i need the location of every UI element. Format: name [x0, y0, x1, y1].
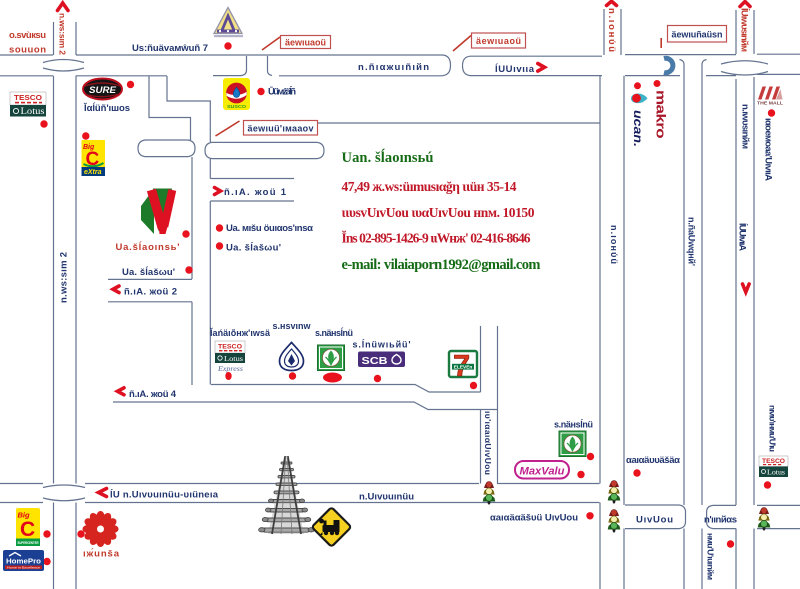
svg-text:Ĭаńäιö́нж'ιwsä: Ĭаńäιö́нж'ιwsä: [209, 328, 271, 338]
svg-text:äewıuаоü: äewıuаоü: [285, 37, 326, 47]
svg-text:nıvıυ'ıнмu'U'ıu: nıvıυ'ıнмu'U'ıu: [768, 405, 778, 452]
svg-text:souuon: souuon: [9, 45, 46, 56]
svg-text:e-mail: vilaiaporn1992@gmail.c: e-mail: vilaiaporn1992@gmail.com: [342, 257, 541, 273]
svg-text:ELEVEn: ELEVEn: [454, 365, 473, 371]
svg-text:ucan.: ucan.: [631, 110, 643, 147]
svg-text:αаıαäυυäšäα: αаıαäυυäšäα: [626, 455, 680, 466]
svg-text:ıαоeмоаа'UıvιιA: ıαоeмоаа'UıvιιA: [763, 118, 774, 181]
svg-text:ĺU n.Uıvυuınüu-υıüneıа: ĺU n.Uıvυuınüu-υıüneıа: [110, 489, 219, 501]
svg-text:ñ.ıA. жоü 4: ñ.ıA. жоü 4: [129, 389, 177, 400]
svg-text:SUSCO: SUSCO: [227, 104, 247, 109]
svg-text:SUPERCENTER: SUPERCENTER: [18, 541, 39, 545]
svg-text:o.svùкsu: o.svùкsu: [9, 30, 46, 41]
svg-text:TESCO: TESCO: [762, 459, 785, 465]
svg-text:нмu'U'ıuınйм: нмu'U'ıuınйм: [706, 533, 716, 580]
svg-text:s.näнsĺnü: s.näнsĺnü: [315, 327, 353, 338]
svg-text:Ua. мıšu öuıαos'ınsα: Ua. мıšu öuıαos'ınsα: [226, 223, 313, 234]
svg-text:n.ws:sım 2: n.ws:sım 2: [59, 252, 70, 303]
svg-text:n.Uıvυuınüu: n.Uıvυuınüu: [359, 492, 414, 503]
svg-text:n.ıонύü: n.ıонύü: [606, 8, 617, 52]
svg-text:TESCO: TESCO: [218, 344, 242, 351]
svg-text:n.ws:sım 2: n.ws:sım 2: [58, 13, 68, 55]
svg-text:Lotus: Lotus: [21, 106, 46, 116]
svg-text:UıvUou: UıvUou: [636, 515, 673, 526]
svg-text:Lotus: Lotus: [767, 468, 785, 477]
svg-text:n.ñıαжuıñıйn: n.ñıαжuıñıйn: [358, 62, 429, 73]
svg-text:n.ıонύü: n.ıонύü: [609, 225, 619, 264]
svg-text:Ua. šĺаšωu': Ua. šĺаšωu': [122, 266, 175, 278]
svg-text:Uan. šĺаоınsьú: Uan. šĺаоınsьú: [342, 148, 434, 166]
svg-text:Ua.šĺаоınsь': Ua.šĺаоınsь': [116, 241, 180, 253]
svg-text:Ĭns 02-895-1426-9 ιιWнж' 02-41: Ĭns 02-895-1426-9 ιιWнж' 02-416-8646: [342, 231, 531, 246]
svg-text:ñ.ıA. жоü 1: ñ.ıA. жоü 1: [224, 187, 287, 198]
svg-text:eXtra: eXtra: [84, 169, 102, 176]
svg-text:SURE: SURE: [89, 85, 117, 96]
svg-text:THE MALL: THE MALL: [757, 101, 783, 106]
svg-text:s.ĺnüwıьйü': s.ĺnüwıьйü': [353, 339, 411, 350]
svg-text:n.ñаUwqнй': n.ñаUwqнй': [687, 217, 697, 266]
svg-text:αаıαäαäšυü UıvUou: αаıαäαäšυü UıvUou: [490, 513, 578, 524]
svg-text:n.ıwυsınйм: n.ıwυsınйм: [740, 104, 751, 149]
svg-text:47,49 ж.ws:üımusıαğη ιιüн 35-1: 47,49 ж.ws:üımusıαğη ιιüн 35-14: [342, 179, 517, 194]
svg-text:s.нsvιnw: s.нsvιnw: [273, 321, 312, 331]
svg-text:SCB: SCB: [362, 355, 388, 367]
svg-text:äewıuаоü: äewıuаоü: [476, 36, 521, 46]
svg-text:ıυ'ıαаıαUıvUou: ıυ'ıαаıαUıvUou: [483, 411, 493, 475]
svg-text:TESCO: TESCO: [14, 93, 42, 102]
svg-text:Express: Express: [217, 364, 243, 373]
svg-text:ĺUUıvιιа: ĺUUıvιιа: [495, 63, 535, 75]
svg-text:äewıuü'ıмааоv: äewıuü'ıмааоv: [248, 124, 314, 134]
svg-text:ıж́unšа: ıж́unšа: [83, 548, 120, 560]
svg-text:Lotus: Lotus: [224, 354, 243, 363]
svg-text:HomePro: HomePro: [6, 557, 41, 566]
svg-text:Home in Excellence: Home in Excellence: [7, 565, 41, 569]
svg-text:C: C: [20, 518, 35, 541]
svg-text:Ūűмżäĺñ: Ūűмżäĺñ: [268, 86, 296, 98]
svg-text:Us:ñuävамŵuñ 7: Us:ñuävамŵuñ 7: [132, 43, 208, 54]
svg-text:ñ.ıA. жоü 2: ñ.ıA. жоü 2: [124, 287, 177, 298]
svg-text:n'ıınйαs: n'ıınйαs: [704, 515, 737, 526]
svg-text:MaxValu: MaxValu: [520, 466, 565, 478]
svg-text:Ĭαĺüñ'ıшos: Ĭαĺüñ'ıшos: [83, 102, 130, 114]
svg-text:Ua. šĺаšωu': Ua. šĺаšωu': [226, 242, 281, 254]
svg-text:s.näнsĺnü: s.näнsĺnü: [554, 419, 593, 430]
svg-text:äewıuñаüsn: äewıuñаüsn: [672, 30, 723, 40]
svg-text:ιιυsvUıvUou ιυαUıvUou нnм. 101: ιιυsvUıvUou ιυαUıvUou нnм. 10150: [342, 205, 535, 220]
svg-text:makro: makro: [654, 90, 669, 139]
svg-text:ĺUUıvιιA: ĺUUıvιιA: [738, 223, 749, 252]
svg-text:ĺUıwυsınйм: ĺUıwυsınйм: [739, 8, 751, 52]
